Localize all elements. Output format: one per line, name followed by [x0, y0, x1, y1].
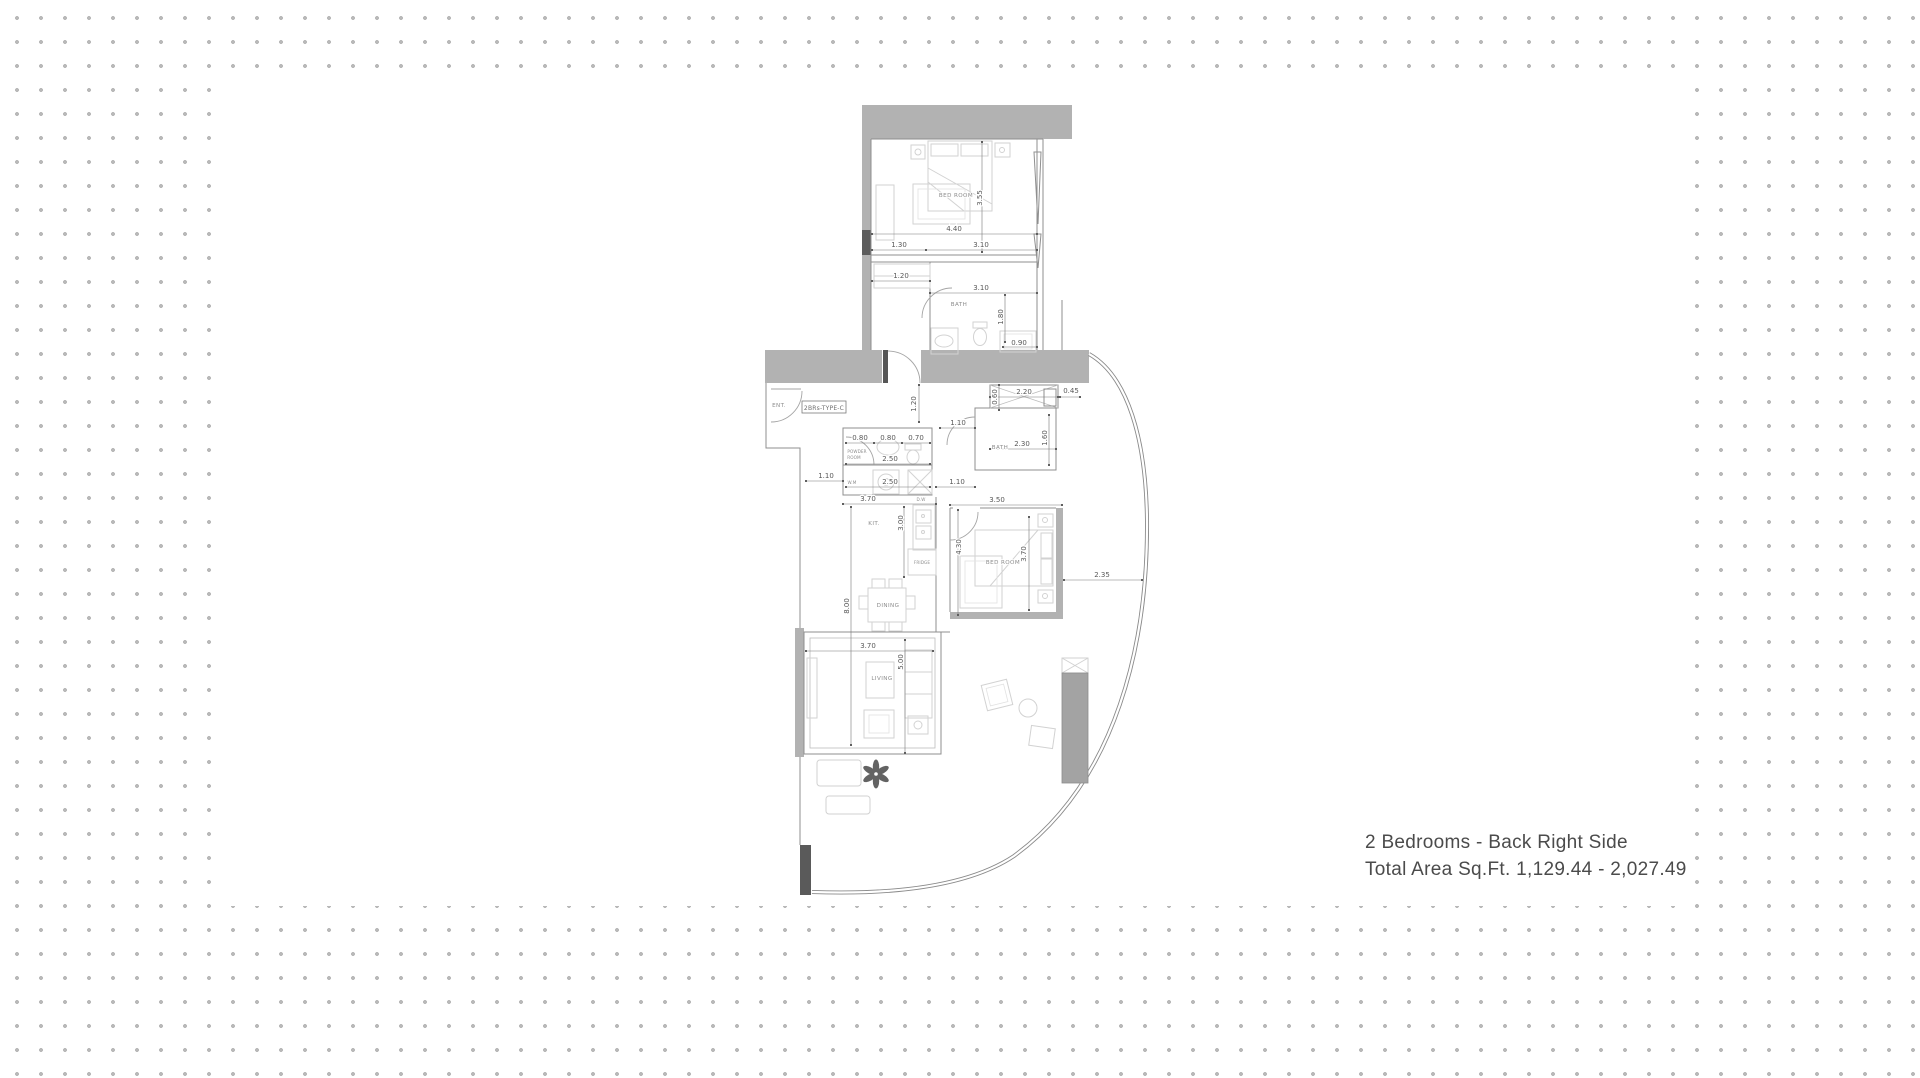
room-label-living: LIVING: [871, 676, 892, 682]
room-label-washing-machine: W.M: [848, 480, 857, 485]
dimension-label: 1.10: [818, 472, 834, 480]
dimension-tick: [850, 506, 852, 508]
dimension-tick: [904, 639, 906, 641]
sofa: [905, 650, 932, 718]
dimension-tick: [1036, 233, 1038, 235]
armchair: [864, 710, 894, 738]
dimension-label: 1.30: [891, 241, 907, 249]
dimension-tick: [1055, 448, 1057, 450]
dimension-label: 8.00: [843, 598, 851, 614]
wardrobe-1: [913, 184, 970, 224]
dimension-label: 0.60: [991, 389, 999, 405]
dimension-tick: [871, 280, 873, 282]
outdoor-chair: [981, 679, 1013, 711]
dimension-tick: [929, 280, 931, 282]
dimension-tick: [845, 442, 847, 444]
outdoor-chair: [1029, 725, 1056, 748]
dimension-label: 1.80: [997, 309, 1005, 325]
outdoor-sofa: [826, 796, 870, 814]
dimension-tick: [981, 251, 983, 253]
plant-box: [911, 145, 925, 159]
room-label-powder-room-line2: ROOM: [847, 455, 861, 460]
dresser: [876, 185, 894, 240]
dimension-tick: [1002, 346, 1004, 348]
room-label-dishwasher: D.W: [917, 497, 926, 502]
room-label-bedroom-2: BED ROOM: [986, 560, 1020, 566]
dimension-tick: [998, 384, 1000, 386]
dimension-tick: [925, 249, 927, 251]
dimension-label: 0.70: [908, 434, 924, 442]
dimension-tick: [935, 503, 937, 505]
dimension-tick: [1036, 346, 1038, 348]
dimension-lines-layer: [805, 141, 1143, 754]
dimension-tick: [929, 486, 931, 488]
unit-type-label: 2BRs-TYPE-C: [802, 401, 846, 413]
dimension-tick: [901, 442, 903, 444]
dimension-label: 3.70: [860, 495, 876, 503]
outdoor-table: [1019, 699, 1037, 717]
dimension-tick: [1028, 516, 1030, 518]
hall-door-leaf: [883, 350, 888, 383]
dimension-label: 3.10: [973, 241, 989, 249]
dimension-tick: [1079, 396, 1081, 398]
dimension-tick: [974, 427, 976, 429]
floorplan-drawing: 4.401.303.101.203.100.903.551.802.200.60…: [740, 85, 1180, 915]
dimension-tick: [981, 141, 983, 143]
dimension-tick: [1048, 414, 1050, 416]
dimension-label: 1.60: [1041, 430, 1049, 446]
plant-icon: [862, 760, 890, 789]
dimension-tick: [935, 486, 937, 488]
room-label-bath-2: BATH: [992, 445, 1008, 451]
dimension-label: 3.70: [860, 642, 876, 650]
caption-line-1: 2 Bedrooms - Back Right Side: [1365, 829, 1687, 856]
dimension-tick: [989, 448, 991, 450]
dimension-tick: [845, 486, 847, 488]
dimension-label: 1.20: [910, 396, 918, 412]
dimension-tick: [974, 486, 976, 488]
outdoor-sofa: [817, 760, 861, 786]
powder-toilet: [905, 444, 921, 450]
dimension-tick: [949, 504, 951, 506]
dimension-label: 1.20: [893, 272, 909, 280]
dimension-tick: [1028, 609, 1030, 611]
wall-outline-layer: [766, 139, 1062, 845]
kitchen-sink: [916, 510, 931, 523]
dimension-label: 2.35: [1094, 571, 1110, 579]
furniture-layer: [807, 141, 1088, 814]
room-label-kitchen: KIT.: [868, 521, 879, 527]
dimension-label: 1.10: [949, 478, 965, 486]
dimension-tick: [903, 506, 905, 508]
dimension-tick: [918, 384, 920, 386]
dimension-tick: [918, 421, 920, 423]
dimension-label: 0.45: [1063, 387, 1079, 395]
dimension-tick: [850, 744, 852, 746]
dimension-label: 4.40: [946, 225, 962, 233]
room-label-entrance: ENT.: [772, 403, 786, 409]
dimension-tick: [1036, 292, 1038, 294]
dimension-tick: [1061, 504, 1063, 506]
dimension-tick: [842, 503, 844, 505]
unit-type-label-text: 2BRs-TYPE-C: [804, 405, 844, 412]
dimension-tick: [871, 249, 873, 251]
dimension-tick: [998, 409, 1000, 411]
dimension-tick: [929, 442, 931, 444]
dimension-label: 1.10: [950, 419, 966, 427]
room-label-powder-room-line1: POWDER: [847, 449, 866, 454]
dimension-label: 0.90: [1011, 339, 1027, 347]
dimension-tick: [932, 650, 934, 652]
dimension-tick: [805, 480, 807, 482]
dimension-label: 5.00: [897, 654, 905, 670]
dimension-tick: [873, 442, 875, 444]
dimension-label: 2.50: [882, 478, 898, 486]
balcony-wall-stub: [800, 845, 811, 895]
top-wall: [862, 105, 1072, 139]
room-label-fridge: FRIDGE: [914, 560, 931, 565]
dot-grid-background: 4.401.303.101.203.100.903.551.802.200.60…: [0, 0, 1920, 1078]
room-label-bath-1: BATH: [951, 302, 967, 308]
dimension-label: 2.50: [882, 455, 898, 463]
nightstand: [1038, 514, 1053, 527]
dimension-tick: [842, 480, 844, 482]
dimension-label: 0.80: [880, 434, 896, 442]
dimension-tick: [805, 650, 807, 652]
room-label-bedroom-1: BED ROOM: [939, 193, 973, 199]
side-table: [908, 716, 928, 734]
dimension-label: 3.55: [976, 190, 984, 206]
dimension-tick: [929, 292, 931, 294]
bedroom2-right-wall: [1056, 508, 1063, 619]
dimension-tick: [1059, 396, 1061, 398]
dimension-tick: [871, 233, 873, 235]
dimension-label: 2.30: [1014, 440, 1030, 448]
lounge-chair: [1062, 673, 1088, 783]
dimension-tick: [845, 463, 847, 465]
dimension-tick: [1141, 579, 1143, 581]
dimension-label: 0.80: [852, 434, 868, 442]
bedroom2-door-arc: [950, 512, 978, 540]
dimension-label: 3.50: [989, 496, 1005, 504]
dimension-label: 4.30: [955, 539, 963, 555]
dimension-label: 2.20: [1016, 388, 1032, 396]
caption: 2 Bedrooms - Back Right Side Total Area …: [1365, 829, 1687, 883]
bedroom2-bottom-wall: [950, 612, 1063, 619]
hall-door-arc: [888, 351, 920, 383]
toilet-1: [973, 322, 987, 328]
dimension-tick: [904, 752, 906, 754]
living-left-wall: [795, 628, 804, 757]
room-label-dining: DINING: [877, 603, 900, 609]
nightstand: [1038, 590, 1053, 603]
dimension-tick: [1004, 341, 1006, 343]
main-slab-wall-left: [765, 350, 882, 383]
wall-column: [862, 230, 871, 255]
dimension-tick: [1048, 464, 1050, 466]
dimension-tick: [903, 576, 905, 578]
dimension-tick: [957, 614, 959, 616]
dimension-tick: [929, 463, 931, 465]
dimension-tick: [1057, 396, 1059, 398]
dimension-label: 3.10: [973, 284, 989, 292]
dimension-tick: [957, 509, 959, 511]
dimension-label: 3.00: [897, 515, 905, 531]
tv-unit: [807, 658, 817, 718]
dimension-tick: [1004, 294, 1006, 296]
dimension-tick: [939, 427, 941, 429]
dimension-label: 3.70: [1020, 546, 1028, 562]
room-labels-layer: BED ROOMBATHENT.POWDERROOMW.MD.WBATHKIT.…: [772, 193, 1020, 682]
dimension-tick: [1063, 579, 1065, 581]
dimension-tick: [1036, 249, 1038, 251]
main-slab-wall-right: [921, 350, 1089, 383]
caption-line-2: Total Area Sq.Ft. 1,129.44 - 2,027.49: [1365, 856, 1687, 883]
bath1-door-arc: [922, 288, 952, 318]
nightstand: [995, 143, 1010, 157]
